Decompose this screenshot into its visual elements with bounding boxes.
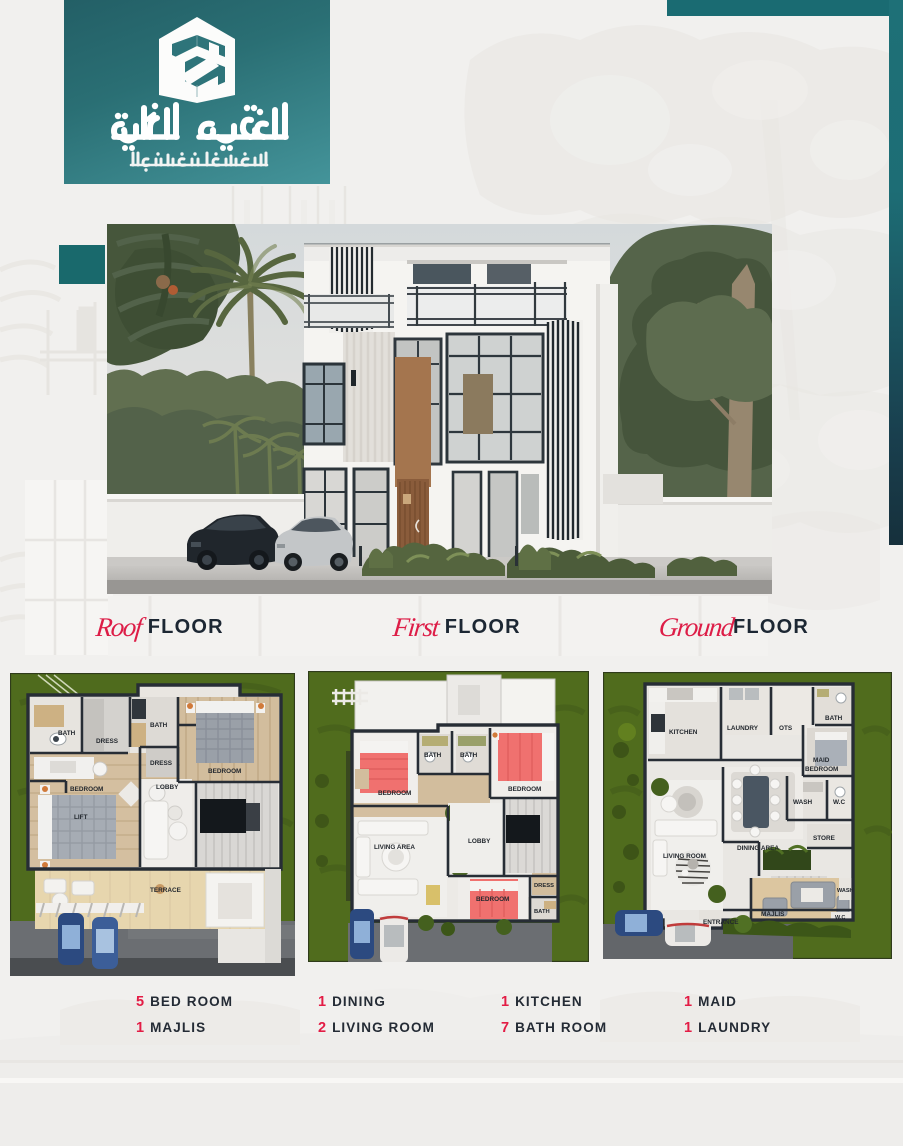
svg-text:MAJLIS: MAJLIS [761, 911, 785, 918]
svg-text:LOBBY: LOBBY [468, 838, 491, 845]
svg-text:DRESS: DRESS [150, 760, 173, 767]
svg-text:BEDROOM: BEDROOM [70, 786, 103, 793]
svg-text:BATH: BATH [58, 730, 76, 737]
svg-text:BATH: BATH [424, 752, 442, 759]
svg-text:BATH: BATH [534, 909, 550, 915]
svg-text:WASH: WASH [837, 888, 854, 894]
svg-text:WASH: WASH [793, 799, 813, 806]
svg-text:STORE: STORE [813, 835, 836, 842]
svg-text:BEDROOM: BEDROOM [805, 766, 838, 773]
svg-text:BATH: BATH [825, 715, 843, 722]
svg-text:MAID: MAID [813, 757, 830, 764]
svg-text:BATH: BATH [150, 722, 168, 729]
svg-text:BEDROOM: BEDROOM [476, 896, 509, 903]
svg-text:LIVING ROOM: LIVING ROOM [663, 853, 706, 860]
svg-text:DRESS: DRESS [96, 738, 119, 745]
svg-text:TERRACE: TERRACE [150, 887, 182, 894]
svg-text:LAUNDRY: LAUNDRY [727, 725, 759, 732]
svg-text:W.C: W.C [835, 915, 845, 921]
svg-text:W.C: W.C [833, 799, 845, 806]
svg-text:LIFT: LIFT [74, 814, 88, 821]
svg-text:KITCHEN: KITCHEN [669, 729, 698, 736]
svg-text:DINING AREA: DINING AREA [737, 845, 779, 852]
svg-text:LOBBY: LOBBY [156, 784, 179, 791]
svg-text:ENTRANCE: ENTRANCE [703, 919, 739, 926]
svg-text:BEDROOM: BEDROOM [208, 768, 241, 775]
svg-text:BEDROOM: BEDROOM [508, 786, 541, 793]
svg-text:LIVING AREA: LIVING AREA [374, 844, 415, 851]
svg-text:BATH: BATH [460, 752, 478, 759]
svg-text:BEDROOM: BEDROOM [378, 790, 411, 797]
svg-text:OTS: OTS [779, 725, 793, 732]
svg-text:DRESS: DRESS [534, 883, 554, 889]
